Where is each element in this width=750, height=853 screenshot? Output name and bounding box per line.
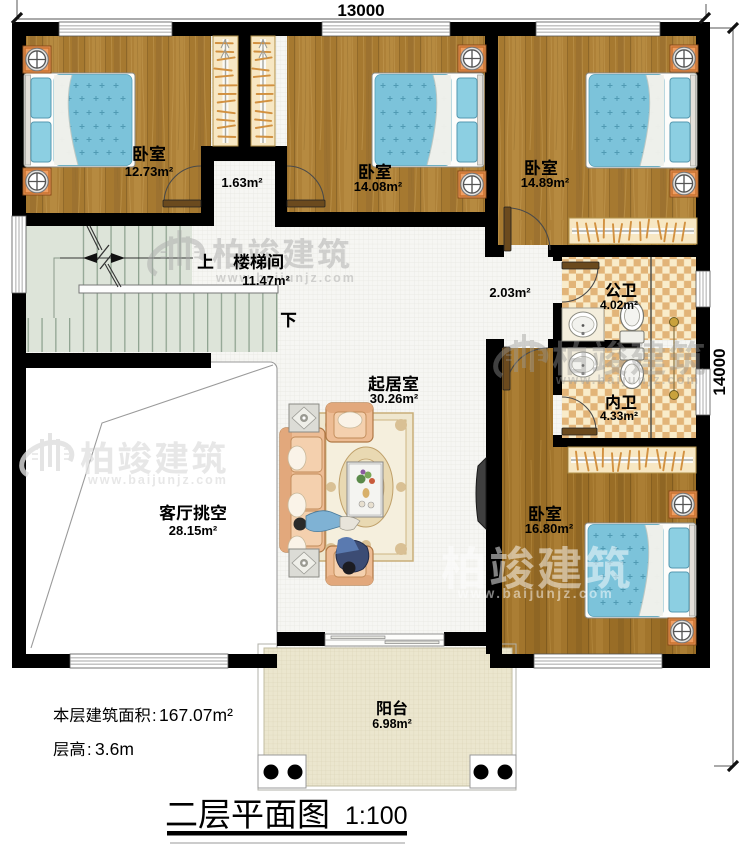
svg-text:14000: 14000 (710, 348, 729, 395)
svg-text:1.63m²: 1.63m² (221, 175, 263, 190)
svg-text::: : (87, 741, 92, 759)
svg-text:28.15m²: 28.15m² (169, 523, 218, 538)
svg-text:30.26m²: 30.26m² (370, 391, 419, 406)
svg-text:4.02m²: 4.02m² (600, 298, 638, 312)
svg-text:14.89m²: 14.89m² (521, 175, 570, 190)
svg-text::: : (152, 707, 157, 725)
svg-text:www.baijunjz.com: www.baijunjz.com (87, 473, 228, 487)
svg-text:6.98m²: 6.98m² (372, 717, 412, 731)
svg-text:14.08m²: 14.08m² (354, 179, 403, 194)
svg-text:www.baijunjz.com: www.baijunjz.com (457, 586, 615, 601)
svg-text:11.47m²: 11.47m² (242, 273, 290, 288)
svg-text:1:100: 1:100 (345, 802, 408, 830)
svg-text:4.33m²: 4.33m² (600, 409, 638, 423)
svg-text:3.6m: 3.6m (95, 739, 134, 759)
svg-text:2.03m²: 2.03m² (489, 285, 531, 300)
svg-text:12.73m²: 12.73m² (125, 164, 174, 179)
svg-text:16.80m²: 16.80m² (525, 521, 574, 536)
svg-text:13000: 13000 (337, 1, 384, 20)
svg-text:167.07m²: 167.07m² (159, 705, 233, 725)
svg-text:www.baijunjz.com: www.baijunjz.com (555, 372, 700, 387)
